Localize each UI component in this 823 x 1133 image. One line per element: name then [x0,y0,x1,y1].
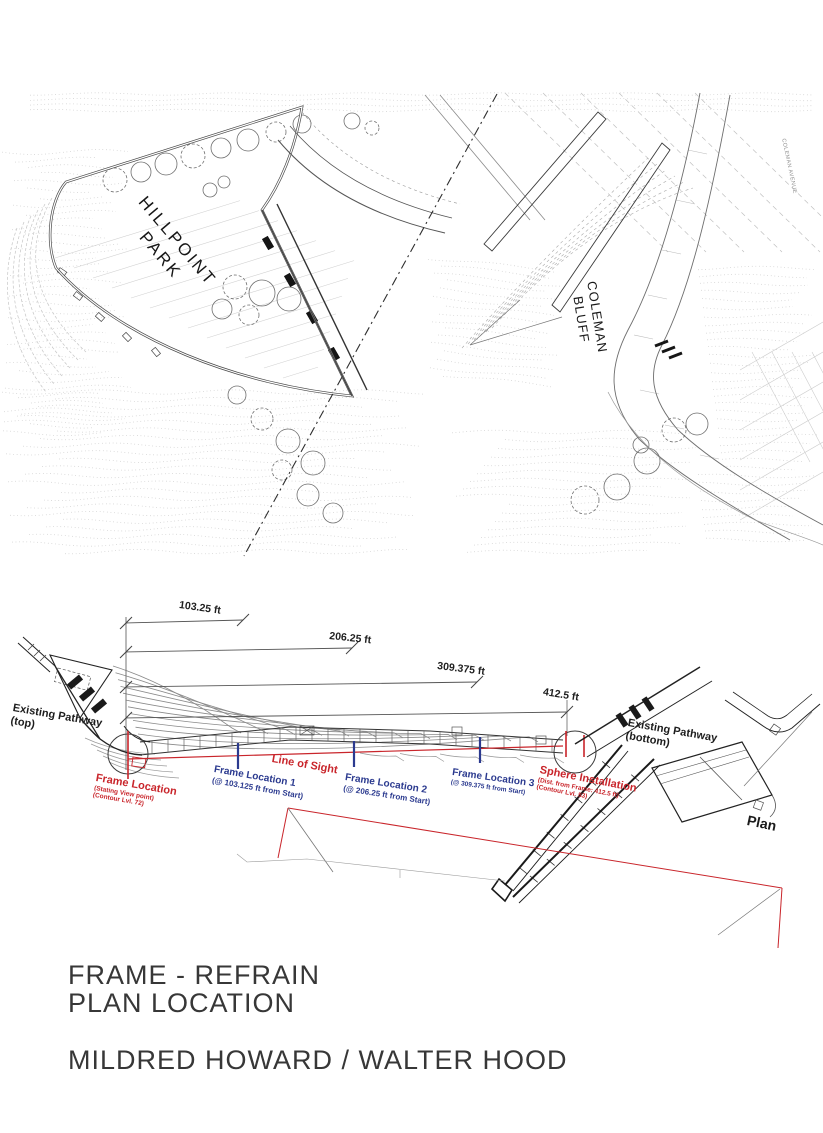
presentation-board: HILLPOINT PARK COLEMAN BLUFF COLEMAN AVE… [0,0,823,1133]
site-plan-drawing [50,93,823,556]
title-line1: FRAME - REFRAIN [68,961,320,989]
credit-line: MILDRED HOWARD / WALTER HOOD [68,1046,568,1074]
title-line2: PLAN LOCATION [68,989,320,1017]
title-block: FRAME - REFRAIN PLAN LOCATION [68,961,320,1017]
construction-lines [237,808,782,948]
